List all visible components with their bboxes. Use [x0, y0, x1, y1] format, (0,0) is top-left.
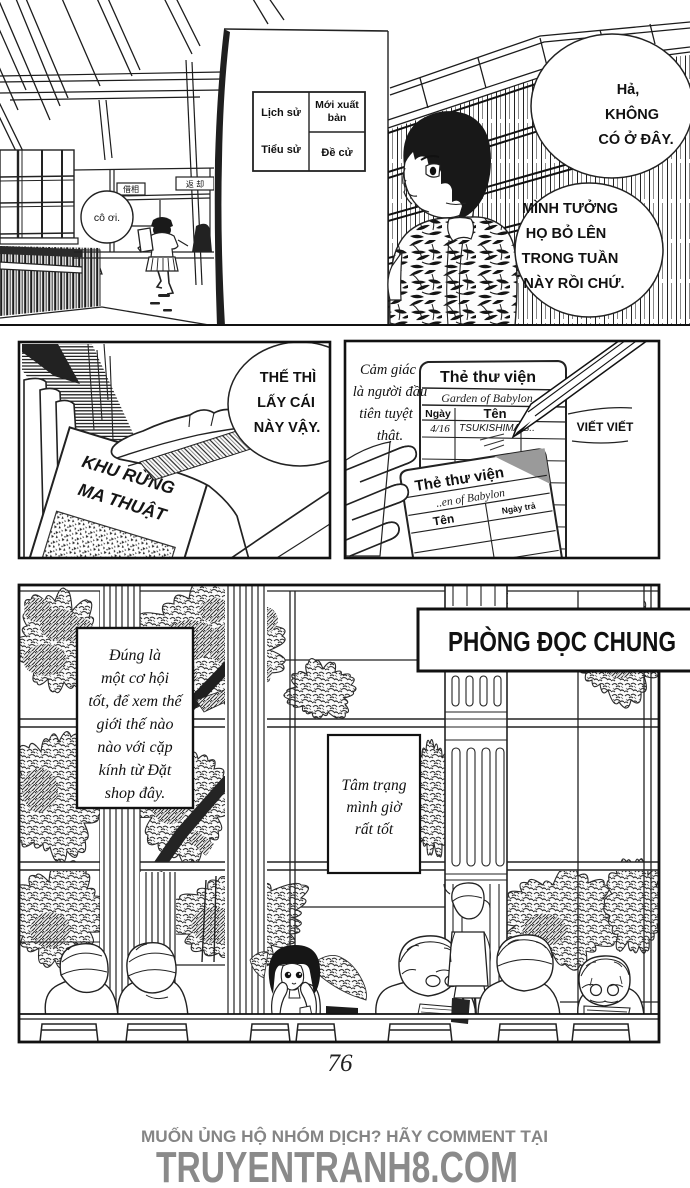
svg-text:là người đầu: là người đầu: [353, 384, 427, 400]
svg-text:Mới xuất: Mới xuất: [315, 99, 359, 111]
svg-text:4/16: 4/16: [430, 423, 450, 435]
svg-text:Tâm trạng: Tâm trạng: [341, 777, 406, 794]
svg-text:返 却: 返 却: [186, 179, 204, 189]
svg-text:kính từ Đặt: kính từ Đặt: [99, 762, 172, 779]
svg-text:Đề cử: Đề cử: [321, 147, 352, 159]
svg-text:THẾ THÌ: THẾ THÌ: [260, 369, 316, 386]
svg-text:giới thế nào: giới thế nào: [97, 716, 174, 733]
svg-text:Tên: Tên: [483, 406, 506, 421]
svg-text:thật.: thật.: [377, 428, 403, 444]
svg-text:TRONG TUẦN: TRONG TUẦN: [522, 250, 619, 267]
svg-text:VIẾT VIẾT: VIẾT VIẾT: [577, 419, 634, 434]
svg-text:LẤY CÁI: LẤY CÁI: [257, 394, 315, 411]
svg-text:rất tốt: rất tốt: [355, 821, 394, 838]
svg-text:TRUYENTRANH8.COM: TRUYENTRANH8.COM: [156, 1143, 518, 1188]
svg-text:tốt, để xem thế: tốt, để xem thế: [88, 693, 183, 710]
svg-text:Cảm giác: Cảm giác: [360, 362, 417, 378]
svg-text:shop đây.: shop đây.: [105, 785, 165, 802]
svg-text:cô ơi.: cô ơi.: [94, 212, 120, 224]
svg-text:Đúng là: Đúng là: [108, 647, 161, 664]
svg-text:Garden of Babylon: Garden of Babylon: [441, 391, 533, 405]
svg-text:KHÔNG: KHÔNG: [605, 105, 659, 123]
svg-text:76: 76: [328, 1050, 354, 1077]
svg-text:Ngày: Ngày: [425, 408, 451, 420]
svg-text:Thẻ thư viện: Thẻ thư viện: [440, 369, 536, 386]
svg-text:tiên tuyệt: tiên tuyệt: [359, 406, 414, 422]
svg-text:bản: bản: [328, 112, 347, 124]
svg-text:HỌ BỎ LÊN: HỌ BỎ LÊN: [526, 224, 607, 242]
svg-text:mình giờ: mình giờ: [346, 799, 402, 816]
svg-text:Hả,: Hả,: [617, 82, 640, 98]
svg-text:NÀY RỒI CHỨ.: NÀY RỒI CHỨ.: [523, 274, 624, 292]
svg-text:NÀY VẬY.: NÀY VẬY.: [254, 418, 321, 436]
svg-text:Tiểu sử: Tiểu sử: [261, 144, 301, 156]
svg-text:Lịch sử: Lịch sử: [261, 107, 301, 119]
svg-text:借相: 借相: [123, 184, 139, 194]
svg-text:MÌNH TƯỞNG: MÌNH TƯỞNG: [522, 199, 618, 217]
svg-text:CÓ Ở ĐÂY.: CÓ Ở ĐÂY.: [598, 130, 673, 148]
svg-text:PHÒNG ĐỌC CHUNG: PHÒNG ĐỌC CHUNG: [448, 626, 676, 657]
svg-text:một cơ hội: một cơ hội: [101, 670, 169, 687]
svg-text:nào với cặp: nào với cặp: [97, 739, 172, 756]
